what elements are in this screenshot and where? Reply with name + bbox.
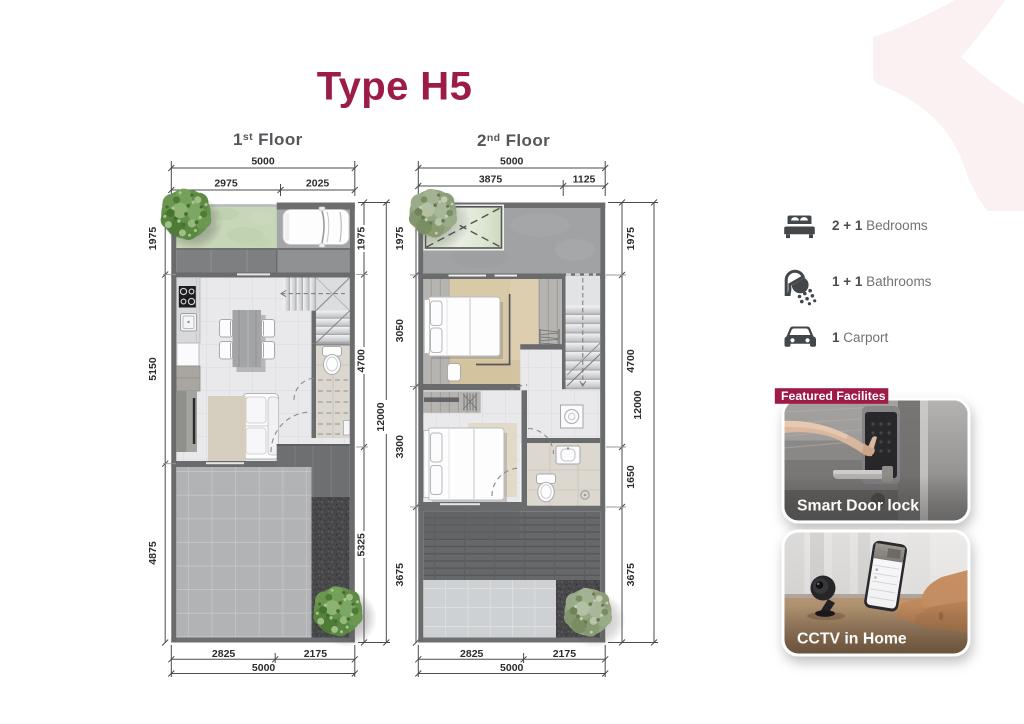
svg-text:1 + 1 Bathrooms: 1 + 1 Bathrooms [832,274,932,289]
svg-text:Smart Door lock: Smart Door lock [797,498,919,515]
svg-text:1975: 1975 [147,227,159,251]
svg-text:4700: 4700 [356,349,368,373]
svg-text:2175: 2175 [553,648,577,660]
svg-text:5000: 5000 [251,156,275,168]
svg-text:5000: 5000 [500,156,524,168]
svg-text:2175: 2175 [304,648,328,660]
svg-text:5150: 5150 [147,357,159,381]
svg-text:2825: 2825 [460,648,484,660]
svg-text:1975: 1975 [394,227,406,251]
svg-text:2 + 1 Bedrooms: 2 + 1 Bedrooms [832,218,928,233]
svg-text:CCTV in Home: CCTV in Home [797,631,907,648]
svg-text:1 Carport: 1 Carport [832,330,889,345]
svg-text:5325: 5325 [356,533,368,557]
svg-text:2975: 2975 [214,178,238,190]
svg-text:Type H5: Type H5 [317,65,472,109]
svg-text:2025: 2025 [306,178,330,190]
svg-text:5000: 5000 [252,662,276,674]
svg-text:1125: 1125 [573,174,596,186]
svg-text:2825: 2825 [212,648,236,660]
svg-text:3050: 3050 [394,319,406,343]
svg-text:4700: 4700 [625,349,637,373]
svg-text:1650: 1650 [625,465,637,489]
svg-text:3675: 3675 [625,563,637,587]
svg-text:4875: 4875 [147,541,159,565]
svg-text:3300: 3300 [394,435,406,459]
svg-text:12000: 12000 [632,390,644,419]
svg-text:1975: 1975 [356,227,368,251]
svg-text:5000: 5000 [500,662,524,674]
svg-text:Featured Facilites: Featured Facilites [781,389,886,403]
svg-text:3875: 3875 [479,174,503,186]
svg-text:12000: 12000 [375,402,387,431]
svg-text:1975: 1975 [625,227,637,251]
svg-text:3675: 3675 [394,563,406,587]
